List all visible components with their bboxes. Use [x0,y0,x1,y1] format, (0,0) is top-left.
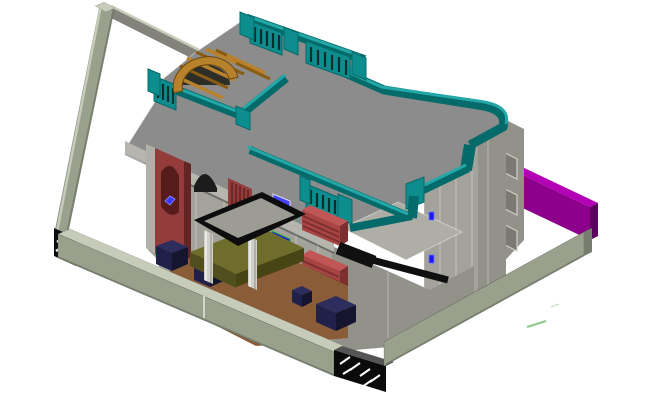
cad-viewport [0,0,650,400]
survey-marker-dash [527,321,546,327]
survey-marker-dash-small [551,304,559,307]
pilaster [146,144,155,254]
tower-window-dot [429,255,434,263]
boundary-wall-left [54,2,115,243]
porch-column [204,230,213,284]
arch-niche [161,166,179,215]
tower-window-dot [429,212,434,220]
purple-side-wall [512,166,598,240]
porch-column [248,236,257,290]
wall-end-cap [584,228,592,256]
parapet-step [412,196,414,218]
cad-3d-house-view [0,0,650,400]
boundary-wall-left-inner-edge [65,11,113,242]
survey-marker [527,304,559,327]
boundary-wall-left-top-edge [56,5,101,237]
